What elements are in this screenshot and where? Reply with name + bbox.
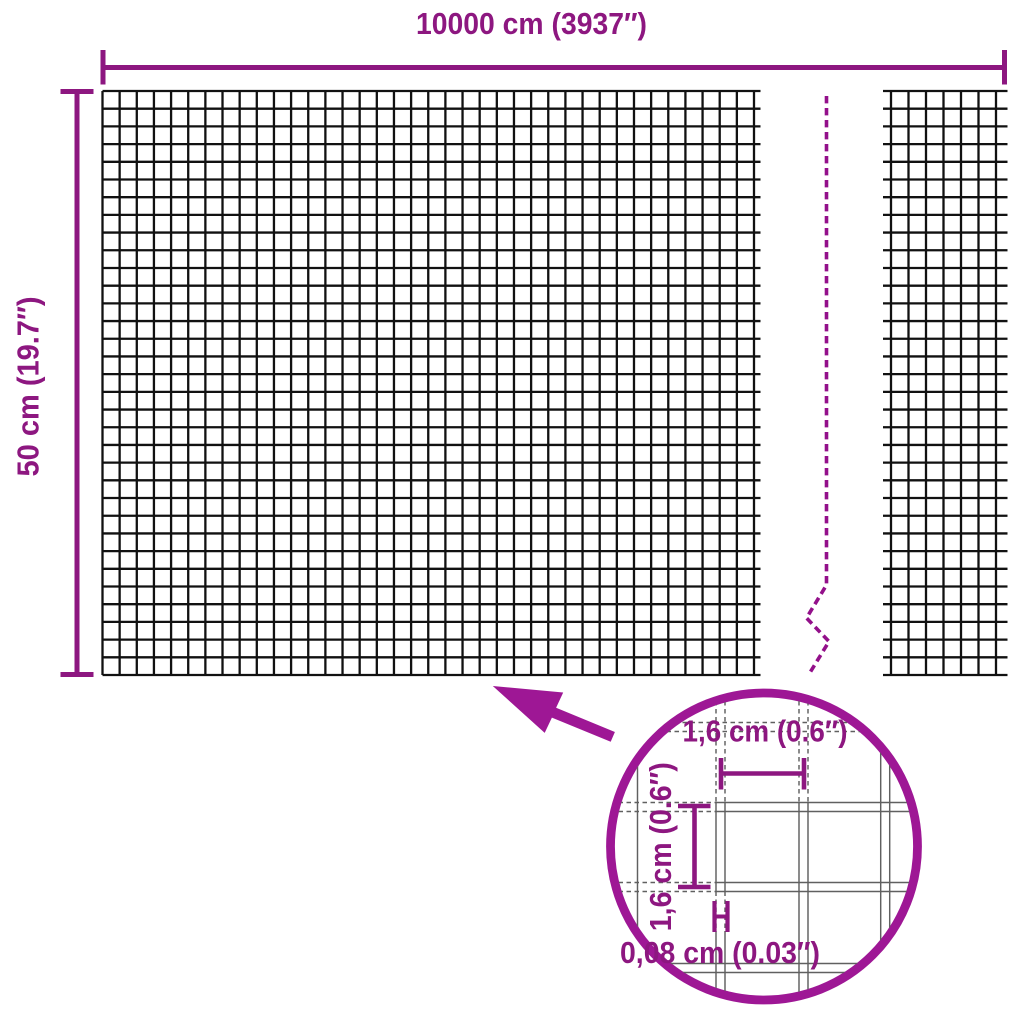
svg-text:1,6 cm (0.6″): 1,6 cm (0.6″) [683, 714, 848, 749]
svg-text:1,6 cm (0.6″): 1,6 cm (0.6″) [643, 762, 678, 931]
svg-text:10000 cm (3937″): 10000 cm (3937″) [416, 6, 647, 41]
svg-text:0,08 cm (0.03″): 0,08 cm (0.03″) [620, 935, 820, 970]
svg-text:50 cm (19.7″): 50 cm (19.7″) [11, 297, 46, 477]
